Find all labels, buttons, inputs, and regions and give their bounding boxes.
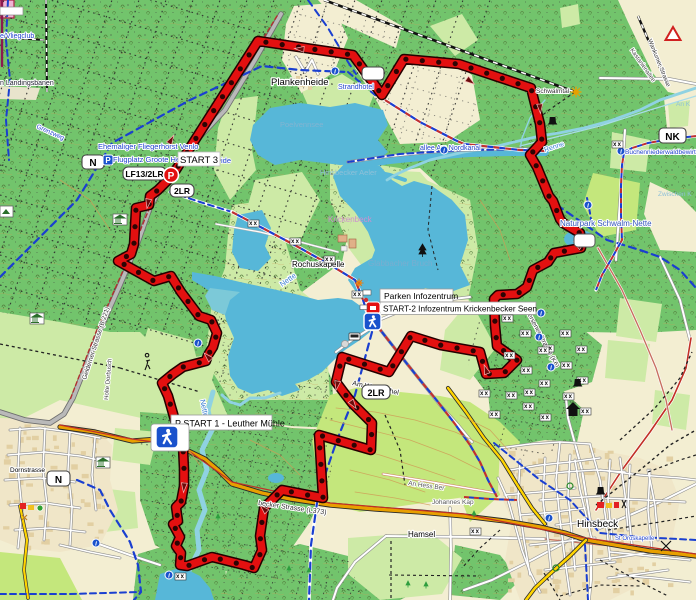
svg-text:Johannes Kap: Johannes Kap — [432, 499, 474, 506]
svg-text:allee Am Nordkanal: allee Am Nordkanal — [420, 145, 481, 152]
svg-text:Hamsel: Hamsel — [408, 530, 435, 539]
svg-text:Plankenheide: Plankenheide — [271, 77, 329, 88]
svg-text:An K: An K — [676, 101, 691, 108]
svg-text:i: i — [334, 68, 336, 75]
svg-text:e/Vliegclub: e/Vliegclub — [0, 33, 34, 40]
svg-text:Buchenniederwaldbewirtsch: Buchenniederwaldbewirtsch — [625, 149, 696, 156]
svg-text:Ehemaliger Fliegerhorst Venlo: Ehemaliger Fliegerhorst Venlo — [98, 142, 198, 151]
svg-text:i: i — [168, 572, 170, 579]
svg-text:n Landingsbanen: n Landingsbanen — [0, 80, 54, 87]
svg-text:Hinsbecker Aeler: Hinsbecker Aeler — [320, 168, 377, 177]
svg-text:Dornstrasse: Dornstrasse — [10, 467, 45, 474]
svg-text:i: i — [587, 202, 589, 209]
svg-text:LF13/2LR: LF13/2LR — [125, 169, 163, 179]
svg-text:Schwalmtal: Schwalmtal — [536, 88, 570, 95]
svg-text:i: i — [548, 515, 550, 522]
svg-text:Strandhotel: Strandhotel — [338, 84, 374, 91]
svg-text:i: i — [538, 334, 540, 341]
svg-text:Poelvennsee: Poelvennsee — [280, 120, 323, 129]
svg-text:Rochuskapelle: Rochuskapelle — [292, 260, 345, 269]
svg-text:Hinsbeck: Hinsbeck — [577, 519, 619, 530]
svg-text:ide: ide — [221, 156, 231, 165]
svg-text:2LR: 2LR — [174, 186, 190, 196]
svg-text:Zwischen K: Zwischen K — [658, 191, 692, 198]
svg-text:i: i — [540, 310, 542, 317]
svg-text:P START 1 - Leuther Mühle: P START 1 - Leuther Mühle — [175, 419, 285, 429]
svg-text:P: P — [168, 171, 175, 182]
svg-text:i: i — [620, 148, 622, 155]
svg-text:2LR: 2LR — [367, 388, 385, 398]
svg-text:Naturpark Schwalm-Nette: Naturpark Schwalm-Nette — [560, 219, 652, 228]
svg-text:NK: NK — [665, 132, 680, 143]
svg-text:START-2 Infozentrum Krickenbec: START-2 Infozentrum Krickenbecker Seen — [383, 305, 537, 314]
svg-text:i: i — [443, 147, 445, 154]
svg-text:P: P — [105, 156, 111, 165]
svg-text:START 3: START 3 — [180, 155, 218, 166]
svg-text:St Oroskapelle: St Oroskapelle — [615, 536, 655, 542]
svg-text:Parken Infozentrum: Parken Infozentrum — [384, 291, 458, 301]
svg-text:Krickenbeck: Krickenbeck — [328, 215, 373, 224]
svg-text:N: N — [55, 475, 62, 486]
svg-text:N: N — [89, 158, 96, 169]
svg-text:Glabbacher Bruch: Glabbacher Bruch — [368, 259, 432, 268]
svg-text:i: i — [550, 364, 552, 371]
svg-text:i: i — [95, 540, 97, 547]
svg-text:i: i — [197, 340, 199, 347]
